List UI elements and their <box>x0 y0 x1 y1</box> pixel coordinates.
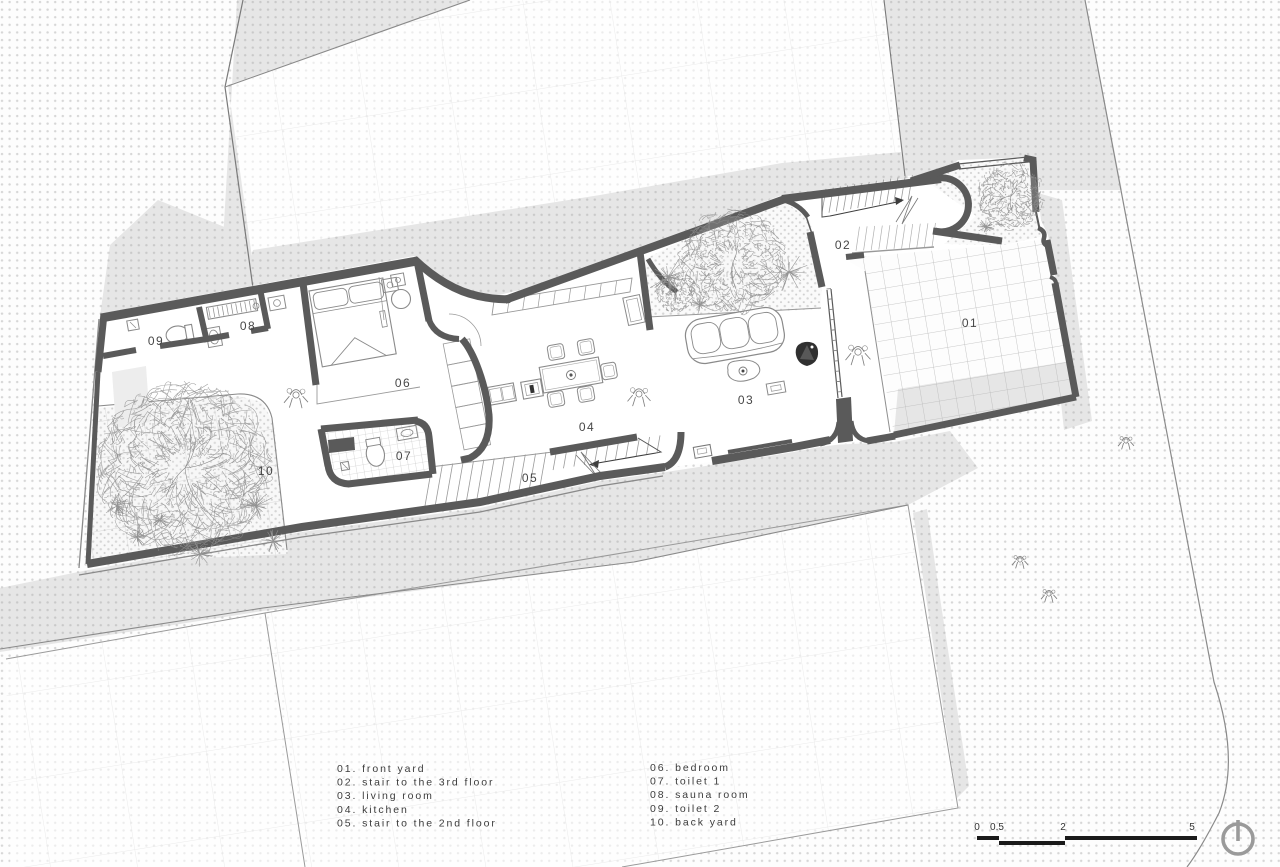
svg-text:05: 05 <box>522 471 538 485</box>
svg-text:10: 10 <box>258 464 274 478</box>
svg-text:10. back yard: 10. back yard <box>650 816 738 828</box>
svg-text:09: 09 <box>148 334 164 348</box>
svg-text:06. bedroom: 06. bedroom <box>650 762 730 774</box>
svg-text:02: 02 <box>835 238 851 252</box>
svg-text:06: 06 <box>395 376 411 390</box>
svg-text:02. stair to the 3rd floor: 02. stair to the 3rd floor <box>337 777 494 789</box>
svg-text:07: 07 <box>396 449 412 463</box>
svg-text:05. stair to the 2nd floor: 05. stair to the 2nd floor <box>337 817 497 829</box>
svg-text:03: 03 <box>738 393 754 407</box>
svg-text:03. living room: 03. living room <box>337 790 434 802</box>
svg-text:01: 01 <box>962 316 978 330</box>
svg-text:08: 08 <box>240 319 256 333</box>
svg-text:2: 2 <box>1060 822 1066 833</box>
svg-text:08. sauna room: 08. sauna room <box>650 789 750 801</box>
svg-text:5: 5 <box>1189 822 1195 833</box>
svg-text:04. kitchen: 04. kitchen <box>337 804 409 816</box>
svg-text:0: 0 <box>974 822 980 833</box>
svg-text:0.5: 0.5 <box>990 822 1004 833</box>
svg-text:04: 04 <box>579 420 595 434</box>
svg-text:01. front yard: 01. front yard <box>337 763 425 775</box>
svg-text:07. toilet 1: 07. toilet 1 <box>650 776 721 788</box>
svg-text:09. toilet 2: 09. toilet 2 <box>650 803 721 815</box>
